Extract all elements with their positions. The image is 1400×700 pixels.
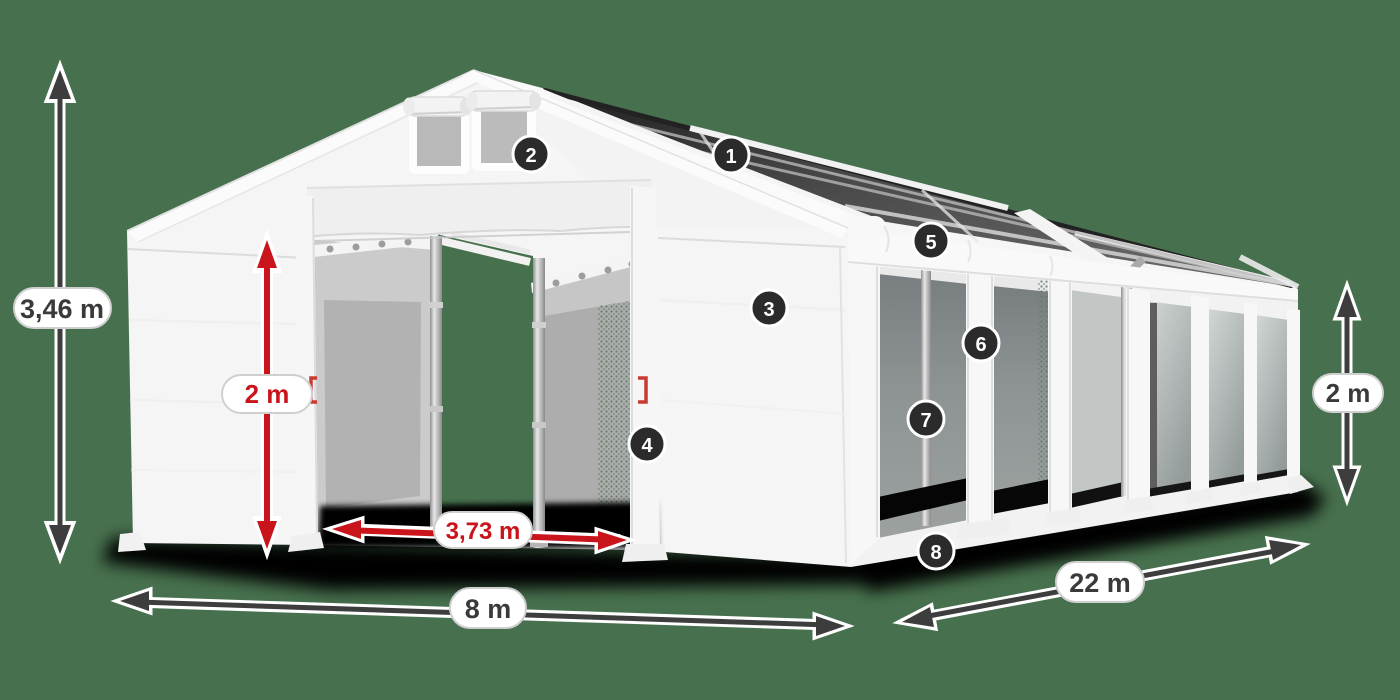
svg-text:2 m: 2 m xyxy=(245,379,290,409)
svg-text:6: 6 xyxy=(975,334,986,356)
svg-text:22 m: 22 m xyxy=(1069,568,1131,598)
svg-text:8: 8 xyxy=(930,542,941,564)
svg-text:3,73 m: 3,73 m xyxy=(446,518,521,545)
svg-text:2: 2 xyxy=(525,145,536,167)
svg-text:8 m: 8 m xyxy=(465,594,512,624)
svg-text:5: 5 xyxy=(925,232,936,254)
svg-text:7: 7 xyxy=(920,410,931,432)
svg-text:3: 3 xyxy=(763,299,774,321)
svg-text:4: 4 xyxy=(641,435,653,457)
svg-text:2 m: 2 m xyxy=(1326,378,1371,408)
svg-text:1: 1 xyxy=(725,146,736,168)
svg-text:3,46 m: 3,46 m xyxy=(20,294,104,324)
